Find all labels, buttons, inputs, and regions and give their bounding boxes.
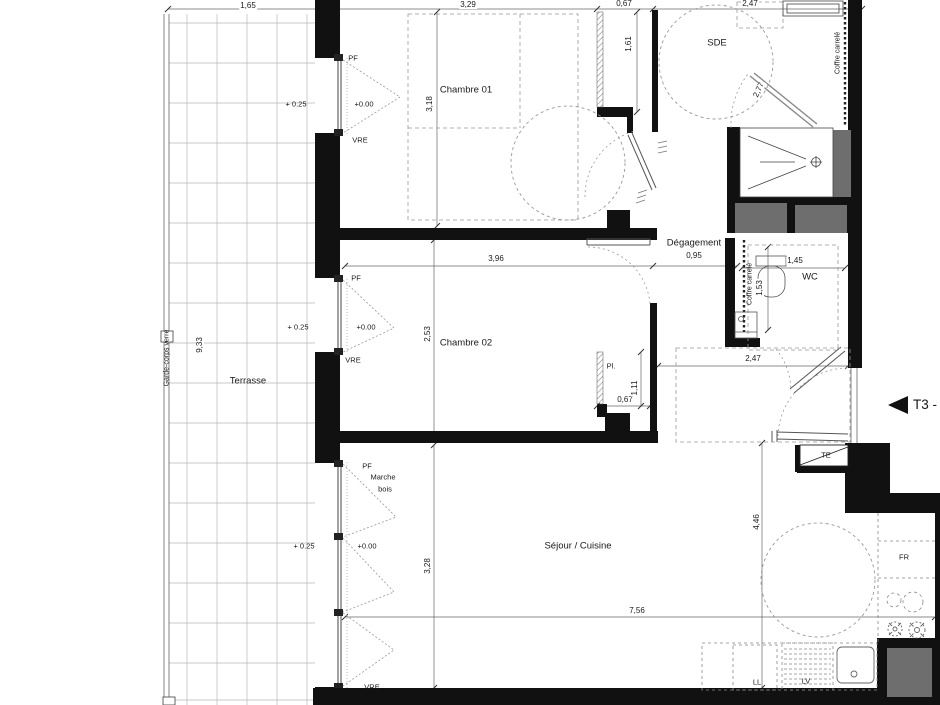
floor-plan: 1,65 3,29 0,67 2,47 3,96 0,95 1,45 2,47 … — [0, 0, 940, 705]
window1-vre-label: VRE — [352, 136, 367, 144]
room-label-terrasse: Terrasse — [230, 376, 266, 386]
dim-chambre01-width: 3,29 — [459, 1, 477, 9]
dim-placard-depth: 1,11 — [631, 380, 639, 397]
terrace-tile-grid — [169, 14, 315, 705]
dim-067-top: 0,67 — [615, 0, 633, 8]
room-label-sde: SDE — [707, 38, 727, 48]
room-label-sejour-cuisine: Séjour / Cuisine — [544, 541, 611, 551]
door-chambre01 — [585, 131, 656, 203]
room-label-chambre02: Chambre 02 — [440, 338, 492, 348]
dim-entry-width: 2,47 — [744, 355, 762, 363]
unit-type-tag: T3 - — [913, 398, 937, 412]
marche-bois-label-line2: bois — [378, 485, 392, 493]
room-label-chambre01: Chambre 01 — [440, 85, 492, 95]
dim-chambre02-depth: 2,53 — [424, 325, 432, 343]
dim-sejour-width: 7,56 — [628, 607, 646, 615]
sde-fixtures — [740, 1, 843, 197]
coffre-carrele-label-sde: Coffre carrelé — [835, 32, 842, 74]
dim-chambre02-width: 3,96 — [487, 255, 505, 263]
window-casement-swings — [343, 58, 400, 688]
dimension-ticks — [165, 6, 938, 691]
room-label-wc: WC — [802, 272, 818, 282]
guardrail-label: Garde-corps verre — [164, 330, 171, 387]
interior-walls — [313, 0, 940, 705]
room-label-degagement: Dégagement — [667, 238, 721, 248]
terrace-level-label-2: + 0.25 — [287, 323, 308, 331]
dim-placard-width: 0,67 — [616, 396, 634, 404]
electrical-panel-label: TE — [821, 451, 831, 459]
kitchen-sink — [837, 647, 874, 683]
fridge-label: FR — [899, 553, 909, 561]
window3-pf-label: PF — [362, 462, 372, 470]
window1-pf-label: PF — [348, 54, 358, 62]
window2-vre-label: VRE — [345, 356, 360, 364]
door-chambre02 — [587, 239, 650, 304]
washer-label: LL — [753, 678, 761, 686]
window3-level-label: +0.00 — [358, 542, 377, 550]
dim-terrace-width: 1,65 — [239, 2, 257, 10]
window1-level-label: +0.00 — [355, 100, 374, 108]
dishwasher-label: LV — [802, 677, 811, 685]
dim-wc-depth: 1,53 — [756, 279, 764, 297]
technical-ducts — [735, 130, 932, 697]
dim-wc-width: 1,45 — [786, 257, 804, 265]
terrace-level-label-1: + 0.25 — [285, 100, 306, 108]
dimension-lines — [168, 9, 935, 688]
coffre-carrele-label-wc: Coffre carrelé — [747, 263, 754, 305]
dim-degagement-width: 0,95 — [685, 252, 703, 260]
window3-vre-label: VRE — [364, 683, 379, 691]
dim-161: 1,61 — [625, 35, 633, 53]
insulated-partitions — [597, 12, 603, 404]
dim-sejour-depth: 4,46 — [753, 513, 761, 531]
cooktop-burners — [888, 622, 925, 638]
window2-level-label: +0.00 — [357, 323, 376, 331]
dim-chambre01-depth: 3,18 — [426, 95, 434, 113]
dim-sde-width: 2,47 — [741, 0, 759, 8]
terrace-level-label-3: + 0.25 — [293, 542, 314, 550]
door-entry — [772, 368, 857, 443]
window2-pf-label: PF — [351, 274, 361, 282]
dim-328: 3,28 — [424, 557, 432, 575]
marche-bois-label-line1: Marche — [370, 473, 395, 481]
room-label-placard: Pl. — [607, 362, 616, 370]
dim-terrace-depth: 9,33 — [196, 336, 204, 354]
floor-plan-drawing — [0, 0, 940, 705]
door-wc — [776, 347, 845, 393]
t3-arrow-icon — [888, 396, 908, 414]
